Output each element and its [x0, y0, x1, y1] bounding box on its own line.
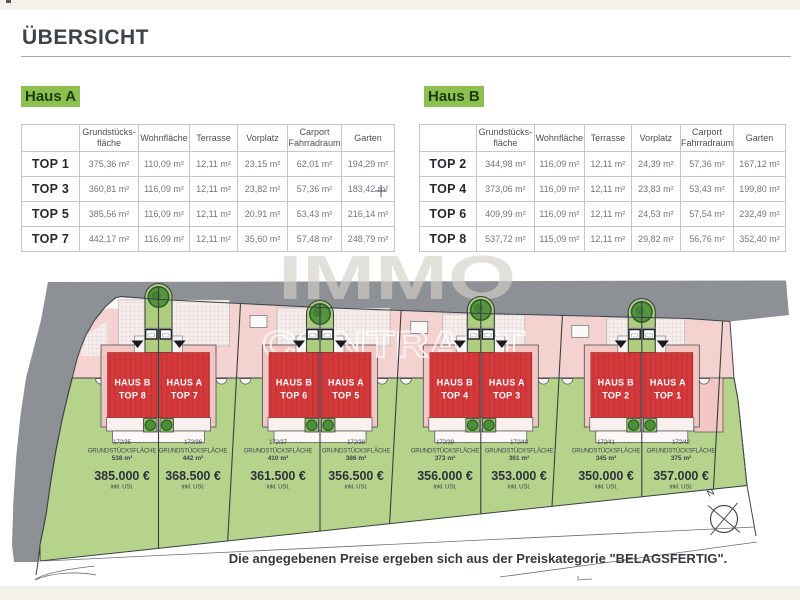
svg-text:HAUS A: HAUS A [489, 378, 525, 388]
svg-text:GRUNDSTÜCKSFLÄCHE: GRUNDSTÜCKSFLÄCHE [572, 448, 641, 455]
svg-text:TOP 3: TOP 3 [493, 391, 520, 401]
svg-text:361 m²: 361 m² [509, 455, 530, 462]
svg-text:386 m²: 386 m² [346, 455, 367, 462]
svg-text:GRUNDSTÜCKSFLÄCHE: GRUNDSTÜCKSFLÄCHE [322, 448, 391, 455]
svg-text:GRUNDSTÜCKSFLÄCHE: GRUNDSTÜCKSFLÄCHE [159, 448, 228, 455]
svg-text:172/41: 172/41 [597, 439, 615, 446]
svg-text:inkl. USt.: inkl. USt. [434, 484, 457, 491]
svg-text:HAUS A: HAUS A [167, 378, 203, 388]
svg-text:356.000 €: 356.000 € [417, 469, 473, 483]
svg-text:385.000 €: 385.000 € [94, 469, 150, 483]
svg-text:TOP 4: TOP 4 [441, 391, 468, 401]
svg-text:HAUS B: HAUS B [276, 378, 313, 388]
svg-text:368.500 €: 368.500 € [165, 469, 221, 483]
svg-text:HAUS B: HAUS B [437, 378, 474, 388]
svg-text:373 m²: 373 m² [435, 455, 456, 462]
svg-text:353.000 €: 353.000 € [491, 469, 547, 483]
svg-text:TOP 8: TOP 8 [119, 391, 146, 401]
svg-text:inkl. USt.: inkl. USt. [267, 484, 290, 491]
svg-text:HAUS B: HAUS B [598, 378, 635, 388]
svg-text:GRUNDSTÜCKSFLÄCHE: GRUNDSTÜCKSFLÄCHE [485, 448, 554, 455]
svg-text:inkl. USt.: inkl. USt. [670, 484, 693, 491]
svg-text:HAUS A: HAUS A [328, 378, 364, 388]
svg-text:inkl. USt.: inkl. USt. [508, 484, 531, 491]
svg-text:172/42: 172/42 [672, 439, 690, 446]
svg-text:HAUS A: HAUS A [650, 378, 686, 388]
svg-text:TOP 7: TOP 7 [171, 391, 198, 401]
svg-text:inkl. USt.: inkl. USt. [111, 484, 134, 491]
svg-text:TOP 5: TOP 5 [332, 391, 359, 401]
svg-text:Die angegebenen Preise ergeben: Die angegebenen Preise ergeben sich aus … [229, 551, 728, 566]
svg-text:GRUNDSTÜCKSFLÄCHE: GRUNDSTÜCKSFLÄCHE [88, 448, 157, 455]
svg-text:TOP 1: TOP 1 [654, 391, 681, 401]
svg-text:442 m²: 442 m² [183, 455, 204, 462]
svg-text:357.000 €: 357.000 € [653, 469, 709, 483]
svg-text:GRUNDSTÜCKSFLÄCHE: GRUNDSTÜCKSFLÄCHE [244, 448, 313, 455]
svg-text:356.500 €: 356.500 € [328, 469, 384, 483]
svg-text:172/35: 172/35 [113, 439, 131, 446]
svg-text:172/40: 172/40 [510, 439, 528, 446]
svg-text:345 m²: 345 m² [596, 455, 617, 462]
svg-text:172/39: 172/39 [436, 439, 454, 446]
svg-text:GRUNDSTÜCKSFLÄCHE: GRUNDSTÜCKSFLÄCHE [647, 448, 716, 455]
svg-text:172/38: 172/38 [347, 439, 365, 446]
svg-text:inkl. USt.: inkl. USt. [182, 484, 205, 491]
svg-text:538 m²: 538 m² [112, 455, 133, 462]
svg-text:172/37: 172/37 [269, 439, 287, 446]
svg-text:TOP 2: TOP 2 [602, 391, 629, 401]
svg-text:inkl. USt.: inkl. USt. [345, 484, 368, 491]
svg-text:GRUNDSTÜCKSFLÄCHE: GRUNDSTÜCKSFLÄCHE [411, 448, 480, 455]
svg-text:375 m²: 375 m² [671, 455, 692, 462]
svg-text:350.000 €: 350.000 € [578, 469, 634, 483]
svg-text:HAUS B: HAUS B [114, 378, 151, 388]
svg-text:172/36: 172/36 [184, 439, 202, 446]
svg-text:inkl. USt.: inkl. USt. [595, 484, 618, 491]
svg-text:410 m²: 410 m² [268, 455, 289, 462]
svg-text:TOP 6: TOP 6 [280, 391, 307, 401]
svg-text:361.500 €: 361.500 € [250, 469, 306, 483]
